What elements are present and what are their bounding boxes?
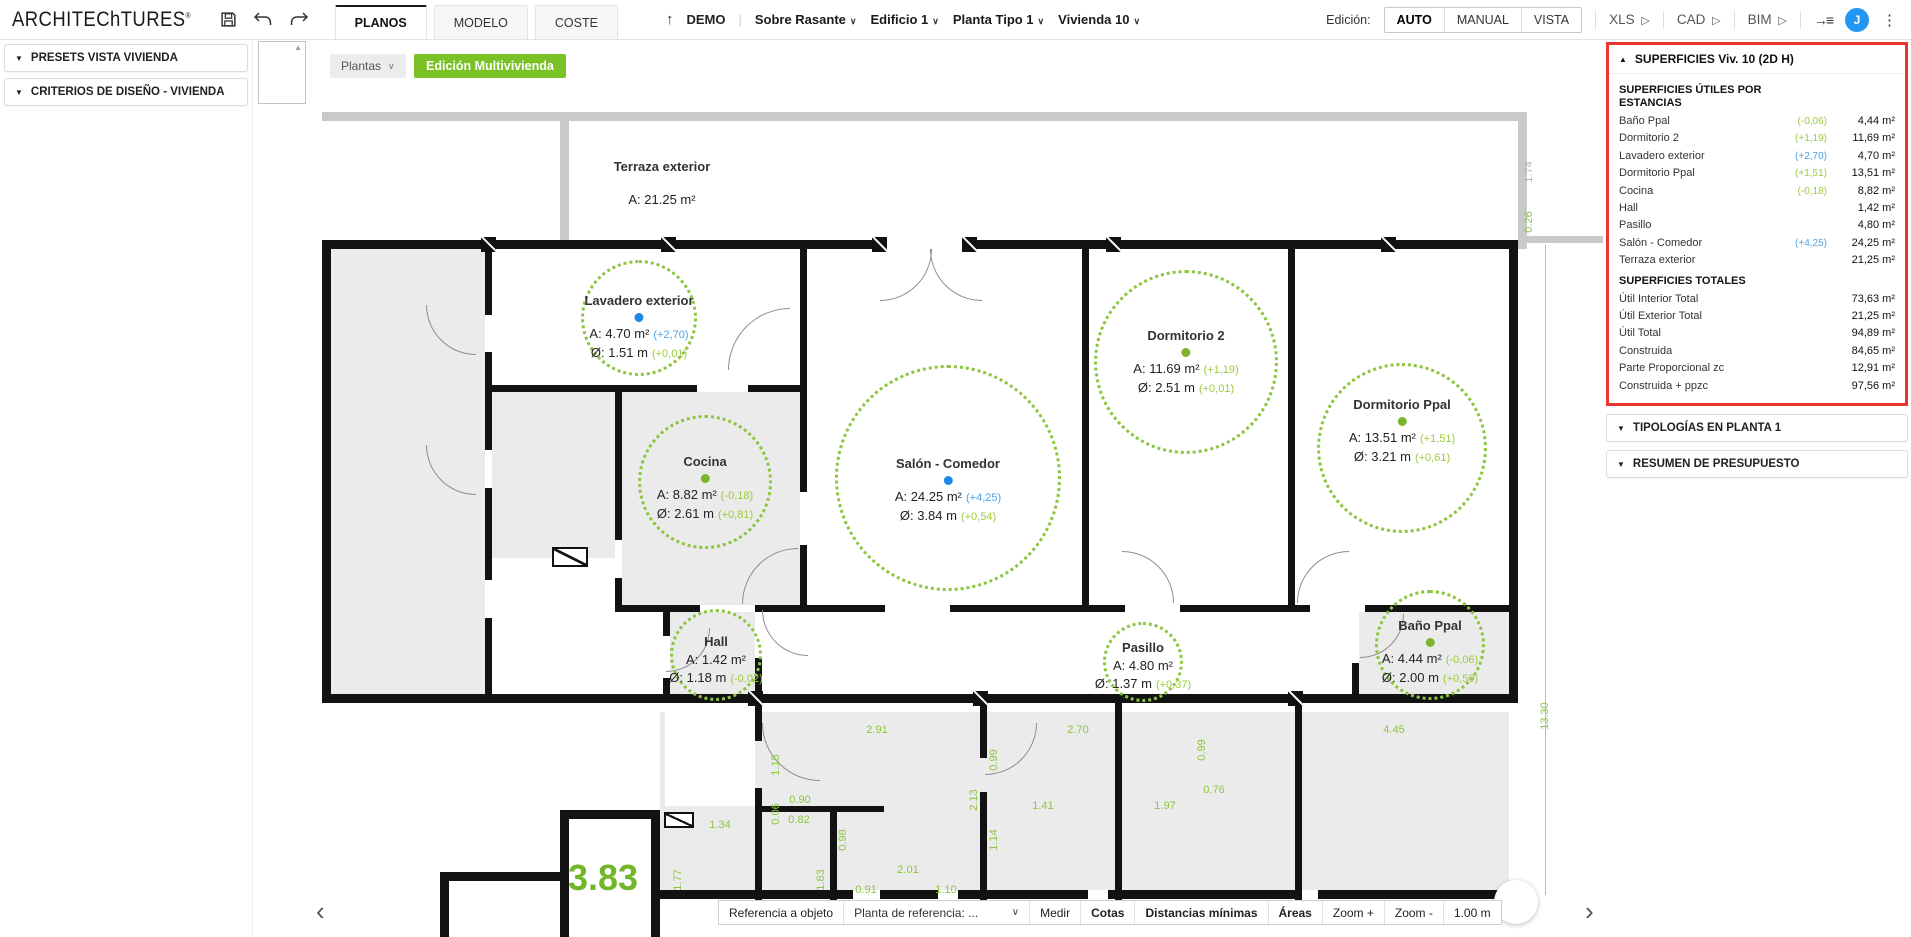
collapse-down-icon: ▼ <box>1617 460 1625 469</box>
dimension-label: 4.45 <box>1383 724 1404 736</box>
column-marker <box>973 691 988 706</box>
room-dot[interactable] <box>944 476 953 485</box>
room-area: A: 13.51 m²(+1,51) <box>1349 429 1455 448</box>
room-diameter: Ø: 1.37 m(+0,37) <box>1095 675 1191 694</box>
wall <box>1180 605 1310 612</box>
door-arc <box>762 610 808 656</box>
room-label[interactable]: Dormitorio 2A: 11.69 m²(+1,19)Ø: 2.51 m(… <box>1133 327 1238 398</box>
reference-plant-select[interactable]: Planta de referencia: ...∨ <box>844 901 1030 924</box>
chevron-down-icon: ∨ <box>850 16 857 26</box>
wall <box>958 890 1088 899</box>
total-row: Útil Interior Total73,63 m² <box>1619 291 1895 308</box>
collapse-down-icon: ▼ <box>15 88 23 97</box>
wall <box>322 694 1518 703</box>
collapsed-panel[interactable]: ▼TIPOLOGÍAS EN PLANTA 1 <box>1606 414 1908 442</box>
room-label[interactable]: Lavadero exteriorA: 4.70 m²(+2,70)Ø: 1.5… <box>584 292 693 363</box>
room-name: Lavadero exterior <box>584 292 693 310</box>
room-area: A: 21.25 m² <box>614 191 711 209</box>
breadcrumb: ↑ DEMO | Sobre Rasante∨Edificio 1∨Planta… <box>666 11 1140 28</box>
project-name-label: DEMO <box>686 12 725 27</box>
wall <box>440 872 449 937</box>
dimension-label: 0.82 <box>788 814 809 826</box>
toolbar-item[interactable]: Áreas <box>1269 901 1323 924</box>
export-to-list-icon[interactable]: →≡ <box>1814 12 1832 28</box>
collapse-down-icon: ▼ <box>1617 424 1625 433</box>
tab-planos[interactable]: PLANOS <box>335 5 427 39</box>
export-bim-button[interactable]: BIM ▷ <box>1748 12 1787 27</box>
room-area: A: 1.42 m² <box>669 651 762 669</box>
room-area: A: 24.25 m²(+4,25) <box>895 488 1001 507</box>
room-name: Baño Ppal <box>1382 617 1478 635</box>
room-label[interactable]: CocinaA: 8.82 m²(-0,18)Ø: 2.61 m(+0,81) <box>657 453 753 524</box>
plantas-dropdown[interactable]: Plantas∨ <box>330 54 406 78</box>
dimension-label: 0.98 <box>837 829 849 850</box>
cutoff-room-box: ▲ <box>258 41 306 104</box>
toolbar-item[interactable]: Distancias mínimas <box>1135 901 1268 924</box>
canvas-toolbar: Referencia a objetoPlanta de referencia:… <box>718 900 1502 925</box>
tab-modelo[interactable]: MODELO <box>434 5 528 39</box>
right-panel: ▲ SUPERFICIES Viv. 10 (2D H) SUPERFICIES… <box>1603 40 1911 937</box>
door-arc <box>930 249 982 301</box>
toolbar-item[interactable]: 1.00 m <box>1444 901 1501 924</box>
dimension-label: 0.76 <box>1203 784 1224 796</box>
surface-row: Terraza exterior21,25 m² <box>1619 252 1895 269</box>
section-title: SUPERFICIES ÚTILES POR ESTANCIAS <box>1619 84 1789 110</box>
terrace-wall <box>1527 236 1603 243</box>
dimension-label: 0.91 <box>855 884 876 896</box>
total-row: Parte Proporcional zc12,91 m² <box>1619 360 1895 377</box>
room-dot[interactable] <box>1426 638 1435 647</box>
scroll-up-icon: ▲ <box>294 43 302 52</box>
room-name: Dormitorio 2 <box>1133 327 1238 345</box>
wall <box>800 240 807 492</box>
dimension-label: 2.13 <box>968 789 980 810</box>
edition-mode-manual[interactable]: MANUAL <box>1444 8 1521 32</box>
play-outline-icon: ▷ <box>1712 15 1720 27</box>
room-diameter: Ø: 3.84 m(+0,54) <box>895 507 1001 526</box>
room-diameter: Ø: 3.21 m(+0,61) <box>1349 448 1455 467</box>
surface-row: Salón - Comedor(+4,25)24,25 m² <box>1619 235 1895 252</box>
column-marker <box>481 237 496 252</box>
dimension-label: 1.34 <box>709 819 730 831</box>
total-row: Construida + ppzc97,56 m² <box>1619 378 1895 395</box>
surface-row: Dormitorio 2(+1,19)11,69 m² <box>1619 130 1895 147</box>
chevron-down-icon: ∨ <box>932 16 939 26</box>
export-xls-button[interactable]: XLS ▷ <box>1609 12 1650 27</box>
dimension-label: 1.83 <box>815 869 827 890</box>
room-dot[interactable] <box>1398 417 1407 426</box>
room-area: A: 4.80 m² <box>1095 657 1191 675</box>
room-area: A: 4.44 m²(-0,06) <box>1382 650 1478 669</box>
room-dot[interactable] <box>634 313 643 322</box>
room-name: Pasillo <box>1095 639 1191 657</box>
superficies-panel: ▲ SUPERFICIES Viv. 10 (2D H) SUPERFICIES… <box>1606 42 1908 406</box>
toolbar-item[interactable]: Medir <box>1030 901 1081 924</box>
wall <box>615 392 622 540</box>
lintel-marker <box>664 812 694 828</box>
column-marker <box>661 237 676 252</box>
save-icon[interactable] <box>220 11 237 28</box>
undo-icon[interactable] <box>253 12 273 27</box>
room-label[interactable]: Salón - ComedorA: 24.25 m²(+4,25)Ø: 3.84… <box>895 455 1001 526</box>
surface-row: Hall1,42 m² <box>1619 200 1895 217</box>
wall <box>962 240 1518 249</box>
wall <box>651 810 660 937</box>
wall <box>1295 703 1302 903</box>
wall <box>755 788 762 903</box>
wall <box>485 352 492 450</box>
surface-row: Pasillo4,80 m² <box>1619 217 1895 234</box>
surface-row: Cocina(-0,18)8,82 m² <box>1619 183 1895 200</box>
total-row: Útil Total94,89 m² <box>1619 325 1895 342</box>
export-cad-button[interactable]: CAD ▷ <box>1677 12 1721 27</box>
superficies-title: SUPERFICIES Viv. 10 (2D H) <box>1635 52 1794 66</box>
surface-row: Lavadero exterior(+2,70)4,70 m² <box>1619 148 1895 165</box>
room-area: A: 11.69 m²(+1,19) <box>1133 360 1238 379</box>
room-name: Cocina <box>657 453 753 471</box>
redo-icon[interactable] <box>289 12 309 27</box>
toolbar-item[interactable]: Referencia a objeto <box>719 901 844 924</box>
wall <box>322 240 880 249</box>
room-label[interactable]: Dormitorio PpalA: 13.51 m²(+1,51)Ø: 3.21… <box>1349 396 1455 467</box>
column-marker <box>1106 237 1121 252</box>
lintel-marker <box>552 547 588 567</box>
play-outline-icon: ▷ <box>1641 15 1649 27</box>
pan-right-chevron[interactable]: › <box>1585 898 1594 924</box>
room-name: Terraza exterior <box>614 158 711 176</box>
total-row: Útil Exterior Total21,25 m² <box>1619 308 1895 325</box>
wall <box>1108 890 1295 899</box>
room-diameter: Ø: 2.51 m(+0,01) <box>1133 379 1238 398</box>
section-title: SUPERFICIES TOTALES <box>1619 275 1895 288</box>
dimension-label: 1.41 <box>1032 800 1053 812</box>
wall <box>880 890 938 899</box>
chevron-down-icon: ∨ <box>1038 16 1045 26</box>
room-diameter: Ø: 1.18 m(-0,02) <box>669 669 762 688</box>
edicion-label: Edición: <box>1326 13 1370 27</box>
breadcrumb-item[interactable]: Edificio 1∨ <box>870 12 938 27</box>
column-marker <box>1381 237 1396 252</box>
room-label[interactable]: HallA: 1.42 m²Ø: 1.18 m(-0,02) <box>669 633 762 688</box>
wall <box>800 545 807 612</box>
dimension-label: 1.14 <box>988 829 1000 850</box>
edition-mode-auto[interactable]: AUTO <box>1385 8 1444 32</box>
multivivienda-badge[interactable]: Edición Multivivienda <box>414 54 566 78</box>
dimension-label: 2.70 <box>1067 724 1088 736</box>
dimension-label: 1.15 <box>770 754 782 775</box>
door-arc <box>1297 551 1349 603</box>
wall <box>1318 890 1509 899</box>
wall <box>1509 240 1518 703</box>
breadcrumb-separator: | <box>738 12 741 27</box>
chevron-down-icon: ∨ <box>1012 907 1019 918</box>
room-label[interactable]: PasilloA: 4.80 m²Ø: 1.37 m(+0,37) <box>1095 639 1191 694</box>
edition-mode-vista[interactable]: VISTA <box>1521 8 1581 32</box>
room-label[interactable]: Baño PpalA: 4.44 m²(-0,06)Ø: 2.00 m(+0,5… <box>1382 617 1478 688</box>
room-diameter: Ø: 1.51 m(+0,01) <box>584 344 693 363</box>
dimension-label: 0.99 <box>988 749 1000 770</box>
dimension-label: 0.06 <box>770 803 782 824</box>
terrace-wall <box>560 112 569 240</box>
dimension-label: 0.99 <box>1196 739 1208 760</box>
tab-bar: PLANOSMODELOCOSTE <box>335 5 618 39</box>
sidebar-panel[interactable]: ▼CRITERIOS DE DISEÑO - VIVIENDA <box>4 78 248 106</box>
dimension-label: 13.30 <box>1539 702 1551 730</box>
toolbar-item[interactable]: Cotas <box>1081 901 1135 924</box>
dimension-label-large: 3.83 <box>568 857 638 899</box>
dimension-label: 2.01 <box>897 864 918 876</box>
room-area: A: 4.70 m²(+2,70) <box>584 325 693 344</box>
collapse-down-icon: ▼ <box>15 54 23 63</box>
room-diameter: Ø: 2.00 m(+0,50) <box>1382 669 1478 688</box>
surface-row: Dormitorio Ppal(+1,51)13,51 m² <box>1619 165 1895 182</box>
chevron-down-icon: ∨ <box>1133 16 1140 26</box>
wall <box>560 810 660 819</box>
wall <box>1115 703 1122 903</box>
edition-mode-group: AUTOMANUALVISTA <box>1384 7 1582 33</box>
column-marker <box>748 691 763 706</box>
level-up-icon[interactable]: ↑ <box>666 11 674 28</box>
wall <box>492 385 697 392</box>
wall <box>748 385 805 392</box>
room-name: Hall <box>669 633 762 651</box>
room-dot[interactable] <box>1182 348 1191 357</box>
wall <box>950 605 1125 612</box>
room-name: Dormitorio Ppal <box>1349 396 1455 414</box>
wall <box>1288 240 1295 612</box>
breadcrumb-item[interactable]: Vivienda 10∨ <box>1058 12 1140 27</box>
room-fill <box>492 392 615 558</box>
sidebar-panel[interactable]: ▼PRESETS VISTA VIVIENDA <box>4 44 248 72</box>
left-sidebar: ▼PRESETS VISTA VIVIENDA▼CRITERIOS DE DIS… <box>0 40 253 937</box>
chevron-down-icon: ∨ <box>388 61 395 72</box>
room-fill <box>665 710 755 806</box>
kebab-menu-icon[interactable]: ⋮ <box>1882 11 1897 29</box>
room-name: Salón - Comedor <box>895 455 1001 473</box>
wall <box>440 872 565 881</box>
dimension-label: 1.10 <box>935 884 956 896</box>
door-arc <box>728 308 790 370</box>
dimension-label: 2.91 <box>866 724 887 736</box>
wall <box>485 618 492 694</box>
dimension-label: 0.26 <box>1523 211 1535 232</box>
breadcrumb-item[interactable]: Sobre Rasante∨ <box>755 12 857 27</box>
surface-row: Baño Ppal(-0,06)4,44 m² <box>1619 113 1895 130</box>
total-row: Construida84,65 m² <box>1619 343 1895 360</box>
room-diameter: Ø: 2.61 m(+0,81) <box>657 505 753 524</box>
app-logo: ARCHITEChTURES® <box>12 8 191 32</box>
wall <box>322 240 331 703</box>
wall <box>1082 240 1089 612</box>
wall <box>617 605 700 612</box>
toolbar-item[interactable]: Zoom + <box>1323 901 1385 924</box>
dimension-label: 1.77 <box>672 869 684 890</box>
collapsed-panel[interactable]: ▼RESUMEN DE PRESUPUESTO <box>1606 450 1908 478</box>
play-outline-icon: ▷ <box>1778 15 1786 27</box>
door-arc <box>880 249 932 301</box>
toolbar-item[interactable]: Zoom - <box>1385 901 1444 924</box>
terrace-wall <box>322 112 1518 121</box>
tab-coste[interactable]: COSTE <box>535 5 618 39</box>
room-area: A: 8.82 m²(-0,18) <box>657 486 753 505</box>
superficies-panel-header[interactable]: ▲ SUPERFICIES Viv. 10 (2D H) <box>1609 45 1905 74</box>
top-bar: ARCHITEChTURES® PLANOSMODELOCOSTE ↑ DEMO… <box>0 0 1911 40</box>
avatar[interactable]: J <box>1845 8 1869 32</box>
wall <box>485 488 492 580</box>
wall <box>660 890 853 899</box>
wall <box>1352 663 1359 701</box>
dimension-line <box>1545 245 1546 895</box>
door-arc <box>1122 551 1174 603</box>
room-fill <box>494 558 615 694</box>
breadcrumb-item[interactable]: Planta Tipo 1∨ <box>953 12 1044 27</box>
column-marker <box>1288 691 1303 706</box>
room-label[interactable]: Terraza exteriorA: 21.25 m² <box>614 158 711 209</box>
pan-left-chevron[interactable]: ‹ <box>316 898 325 924</box>
room-dot[interactable] <box>701 474 710 483</box>
dimension-label: 1.74 <box>1523 161 1535 182</box>
dimension-label: 1.97 <box>1154 800 1175 812</box>
collapse-up-icon: ▲ <box>1619 55 1627 64</box>
wall <box>980 792 987 903</box>
dimension-label: 0.90 <box>789 794 810 806</box>
wall <box>485 249 492 315</box>
wall <box>755 703 762 741</box>
